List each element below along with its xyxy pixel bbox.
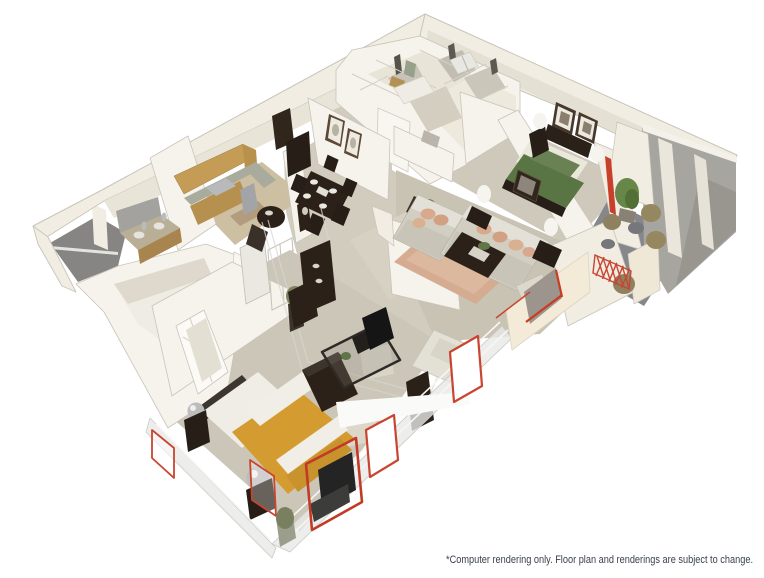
svg-text:*Computer rendering only. Floo: *Computer rendering only. Floor plan and… [446,554,753,566]
